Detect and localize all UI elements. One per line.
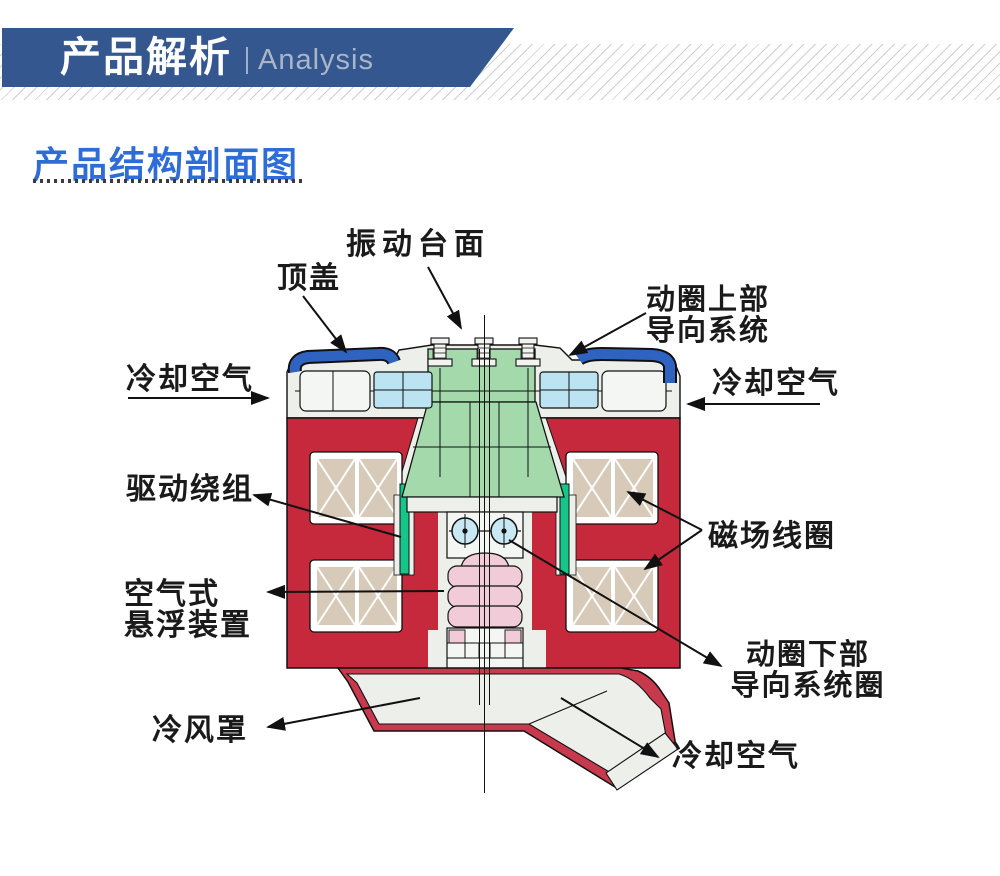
label-cooling-hood: 冷风罩 bbox=[152, 715, 248, 746]
arrow-top-cover bbox=[303, 296, 346, 352]
label-cooling-air-left: 冷却空气 bbox=[126, 364, 254, 395]
arrow-table-surface bbox=[428, 267, 461, 328]
label-air-suspension: 空气式悬浮装置 bbox=[124, 579, 252, 641]
label-drive-winding: 驱动绕组 bbox=[126, 474, 254, 505]
field-coil-upper-left bbox=[310, 452, 402, 524]
shaker-cross-section-diagram bbox=[0, 0, 1000, 876]
field-coil-upper-right bbox=[566, 452, 658, 524]
label-cooling-air-right: 冷却空气 bbox=[712, 368, 840, 399]
label-top-cover: 顶盖 bbox=[277, 263, 341, 294]
label-table-surface: 振动台面 bbox=[346, 229, 490, 260]
label-lower-guide: 动圈下部导向系统圈 bbox=[730, 640, 886, 702]
product-analysis-page: 产品解析 Analysis 产品结构剖面图 bbox=[0, 0, 1000, 876]
arrow-air-suspension bbox=[268, 591, 444, 592]
cooling-hood bbox=[338, 668, 678, 790]
label-upper-guide: 动圈上部导向系统 bbox=[640, 285, 776, 347]
label-cooling-air-bottom: 冷却空气 bbox=[672, 741, 800, 772]
field-coil-lower-left bbox=[310, 560, 402, 632]
label-field-coil: 磁场线圈 bbox=[708, 521, 836, 552]
